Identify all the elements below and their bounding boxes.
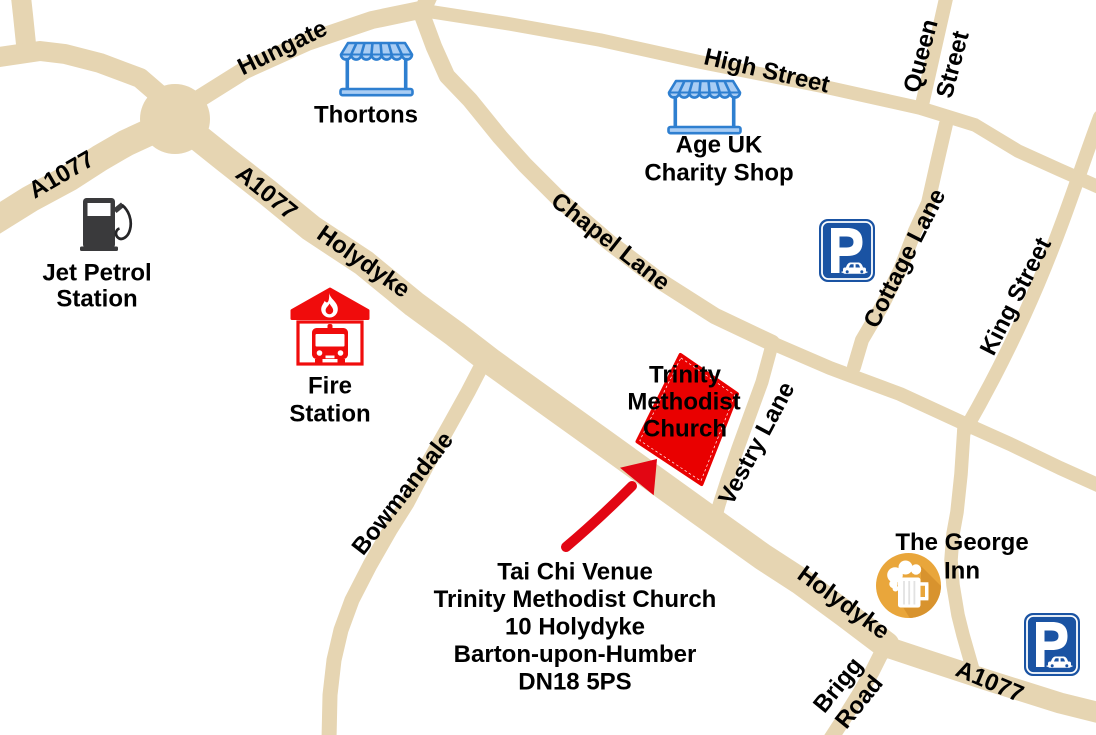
svg-text:Tai Chi Venue: Tai Chi Venue (497, 559, 653, 586)
svg-text:A1077: A1077 (230, 160, 302, 225)
svg-text:Barton-upon-Humber: Barton-upon-Humber (454, 641, 697, 668)
svg-text:A1077: A1077 (952, 656, 1028, 708)
svg-text:Age UK: Age UK (676, 132, 763, 159)
svg-text:Charity Shop: Charity Shop (644, 160, 793, 187)
svg-text:10 Holydyke: 10 Holydyke (505, 614, 645, 641)
svg-text:Church: Church (643, 416, 727, 443)
svg-text:Methodist: Methodist (627, 389, 740, 416)
svg-text:Trinity: Trinity (649, 362, 722, 389)
svg-text:Inn: Inn (944, 558, 980, 585)
svg-text:DN18 5PS: DN18 5PS (518, 669, 631, 696)
svg-text:Thortons: Thortons (314, 102, 418, 129)
svg-text:Bowmandale: Bowmandale (347, 427, 459, 560)
svg-text:The George: The George (895, 529, 1028, 556)
svg-text:Station: Station (56, 286, 137, 313)
svg-text:Chapel Lane: Chapel Lane (546, 187, 675, 296)
svg-text:Trinity Methodist Church: Trinity Methodist Church (434, 586, 717, 613)
svg-text:Station: Station (289, 401, 370, 428)
svg-text:Jet Petrol: Jet Petrol (42, 260, 151, 287)
svg-text:Fire: Fire (308, 373, 352, 400)
